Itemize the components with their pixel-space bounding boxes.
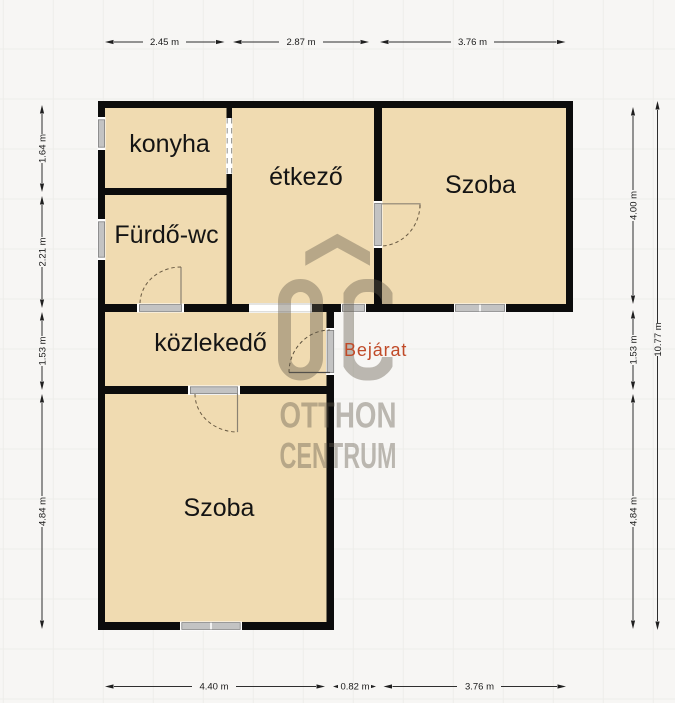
svg-text:2.21 m: 2.21 m bbox=[37, 237, 48, 266]
svg-text:étkező: étkező bbox=[269, 163, 343, 191]
svg-text:1.64 m: 1.64 m bbox=[37, 134, 48, 163]
svg-text:4.00 m: 4.00 m bbox=[628, 191, 639, 220]
svg-text:CENTRUM: CENTRUM bbox=[280, 435, 397, 476]
svg-text:2.45 m: 2.45 m bbox=[150, 37, 179, 48]
svg-text:0.82 m: 0.82 m bbox=[340, 682, 369, 693]
svg-text:10.77 m: 10.77 m bbox=[653, 322, 664, 356]
svg-text:1.53 m: 1.53 m bbox=[628, 335, 639, 364]
svg-text:3.76 m: 3.76 m bbox=[458, 37, 487, 48]
svg-text:4.40 m: 4.40 m bbox=[199, 682, 228, 693]
svg-text:3.76 m: 3.76 m bbox=[465, 682, 494, 693]
svg-text:Szoba: Szoba bbox=[184, 494, 255, 522]
svg-text:1.53 m: 1.53 m bbox=[37, 336, 48, 365]
svg-text:közlekedő: közlekedő bbox=[154, 329, 267, 357]
svg-text:OTTHON: OTTHON bbox=[280, 394, 397, 435]
svg-text:Szoba: Szoba bbox=[445, 171, 516, 199]
svg-text:4.84 m: 4.84 m bbox=[628, 497, 639, 526]
svg-text:Bejárat: Bejárat bbox=[344, 340, 407, 360]
svg-text:konyha: konyha bbox=[129, 130, 210, 158]
svg-text:2.87 m: 2.87 m bbox=[286, 37, 315, 48]
svg-text:Fürdő-wc: Fürdő-wc bbox=[114, 221, 218, 249]
svg-text:4.84 m: 4.84 m bbox=[37, 497, 48, 526]
